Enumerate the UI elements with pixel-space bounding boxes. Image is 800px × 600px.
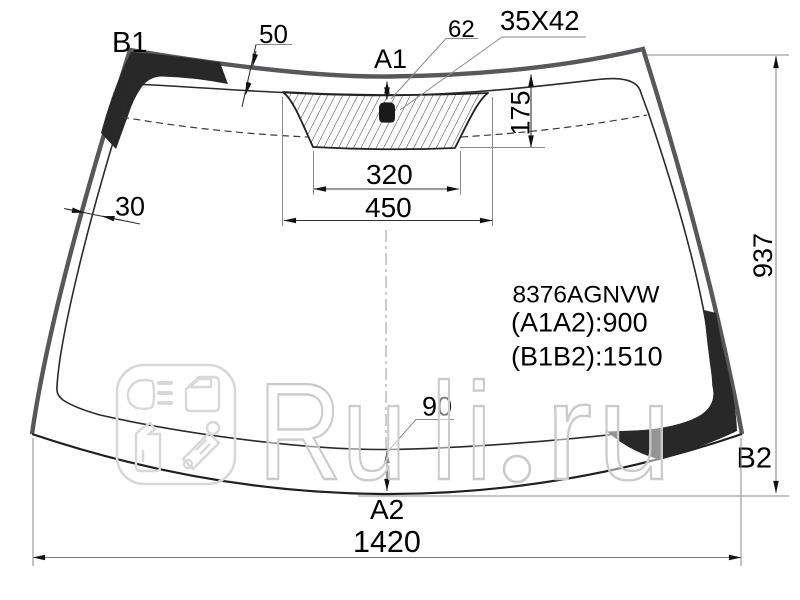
svg-text:35X42: 35X42 [500, 5, 580, 36]
svg-text:(A1A2):900: (A1A2):900 [511, 308, 648, 338]
svg-text:r: r [546, 355, 592, 509]
svg-text:1420: 1420 [353, 525, 421, 559]
svg-text:320: 320 [366, 159, 413, 190]
svg-text:u: u [342, 356, 406, 510]
svg-text:937: 937 [748, 233, 778, 278]
svg-text:A1: A1 [374, 44, 407, 74]
svg-text:i: i [466, 356, 492, 510]
svg-text:450: 450 [365, 192, 412, 223]
svg-text:l: l [431, 356, 457, 510]
svg-text:8376AGNVW: 8376AGNVW [513, 282, 661, 309]
svg-text:B1: B1 [112, 27, 147, 59]
svg-text:R: R [258, 356, 342, 510]
svg-text:30: 30 [115, 192, 145, 222]
svg-text:B2: B2 [737, 443, 772, 475]
svg-text:u: u [598, 354, 671, 509]
